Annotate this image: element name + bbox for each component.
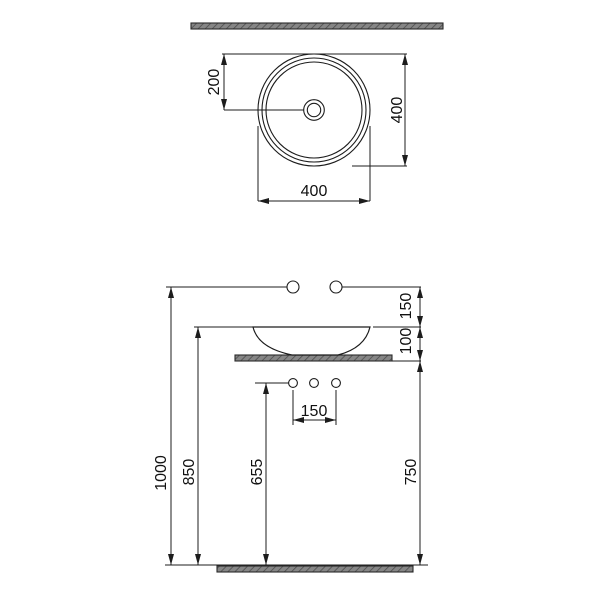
arrow-100-bottom — [417, 350, 423, 361]
arrow-1000-top — [168, 287, 174, 298]
mounting-hole-center — [310, 379, 319, 388]
arrow-150-bottom — [417, 316, 423, 327]
basin-profile — [253, 327, 370, 355]
arrow-100-top — [417, 327, 423, 338]
mounting-hole-left — [289, 379, 298, 388]
dimension-arrowheads — [168, 54, 423, 565]
arrow-655-bottom — [263, 554, 269, 565]
drawing-canvas: 200 400 400 150 100 150 1000 850 655 750 — [0, 0, 600, 594]
front-view — [165, 281, 428, 572]
dim-label-basin-height: 400 — [389, 97, 406, 124]
arrow-400h-right — [359, 198, 370, 204]
arrow-750-bottom — [417, 554, 423, 565]
arrow-750-top — [417, 361, 423, 372]
faucet-hole-right — [330, 281, 342, 293]
dimension-labels: 200 400 400 150 100 150 1000 850 655 750 — [153, 69, 420, 491]
drain-inner-circle — [307, 103, 320, 116]
countertop-section-bar — [235, 355, 392, 361]
dim-label-holes-spacing: 150 — [301, 403, 328, 420]
arrow-850-top — [195, 327, 201, 338]
arrow-400v-top — [402, 54, 408, 65]
dim-label-basin-width: 400 — [301, 183, 328, 200]
arrow-850-bottom — [195, 554, 201, 565]
faucet-hole-left — [287, 281, 299, 293]
dim-label-total-height: 1000 — [153, 455, 170, 491]
arrow-200-top — [221, 54, 227, 65]
technical-drawing: 200 400 400 150 100 150 1000 850 655 750 — [0, 0, 600, 594]
arrow-400h-left — [258, 198, 269, 204]
wall-section-bar — [191, 23, 443, 29]
dim-label-rim-height: 850 — [181, 459, 198, 486]
arrow-150-top — [417, 287, 423, 298]
dim-label-faucet-to-rim: 150 — [398, 293, 415, 320]
arrow-1000-bottom — [168, 554, 174, 565]
floor-section-bar — [217, 566, 413, 572]
arrow-400v-bottom — [402, 155, 408, 166]
mounting-hole-right — [332, 379, 341, 388]
dim-label-countertop-height: 750 — [403, 459, 420, 486]
arrow-200-bottom — [221, 99, 227, 110]
top-view-dimension-lines — [222, 54, 407, 201]
dim-label-holes-height: 655 — [249, 459, 266, 486]
dim-label-rim-to-countertop: 100 — [398, 328, 415, 355]
dim-label-center-offset: 200 — [206, 69, 223, 96]
arrow-655-top — [263, 383, 269, 394]
